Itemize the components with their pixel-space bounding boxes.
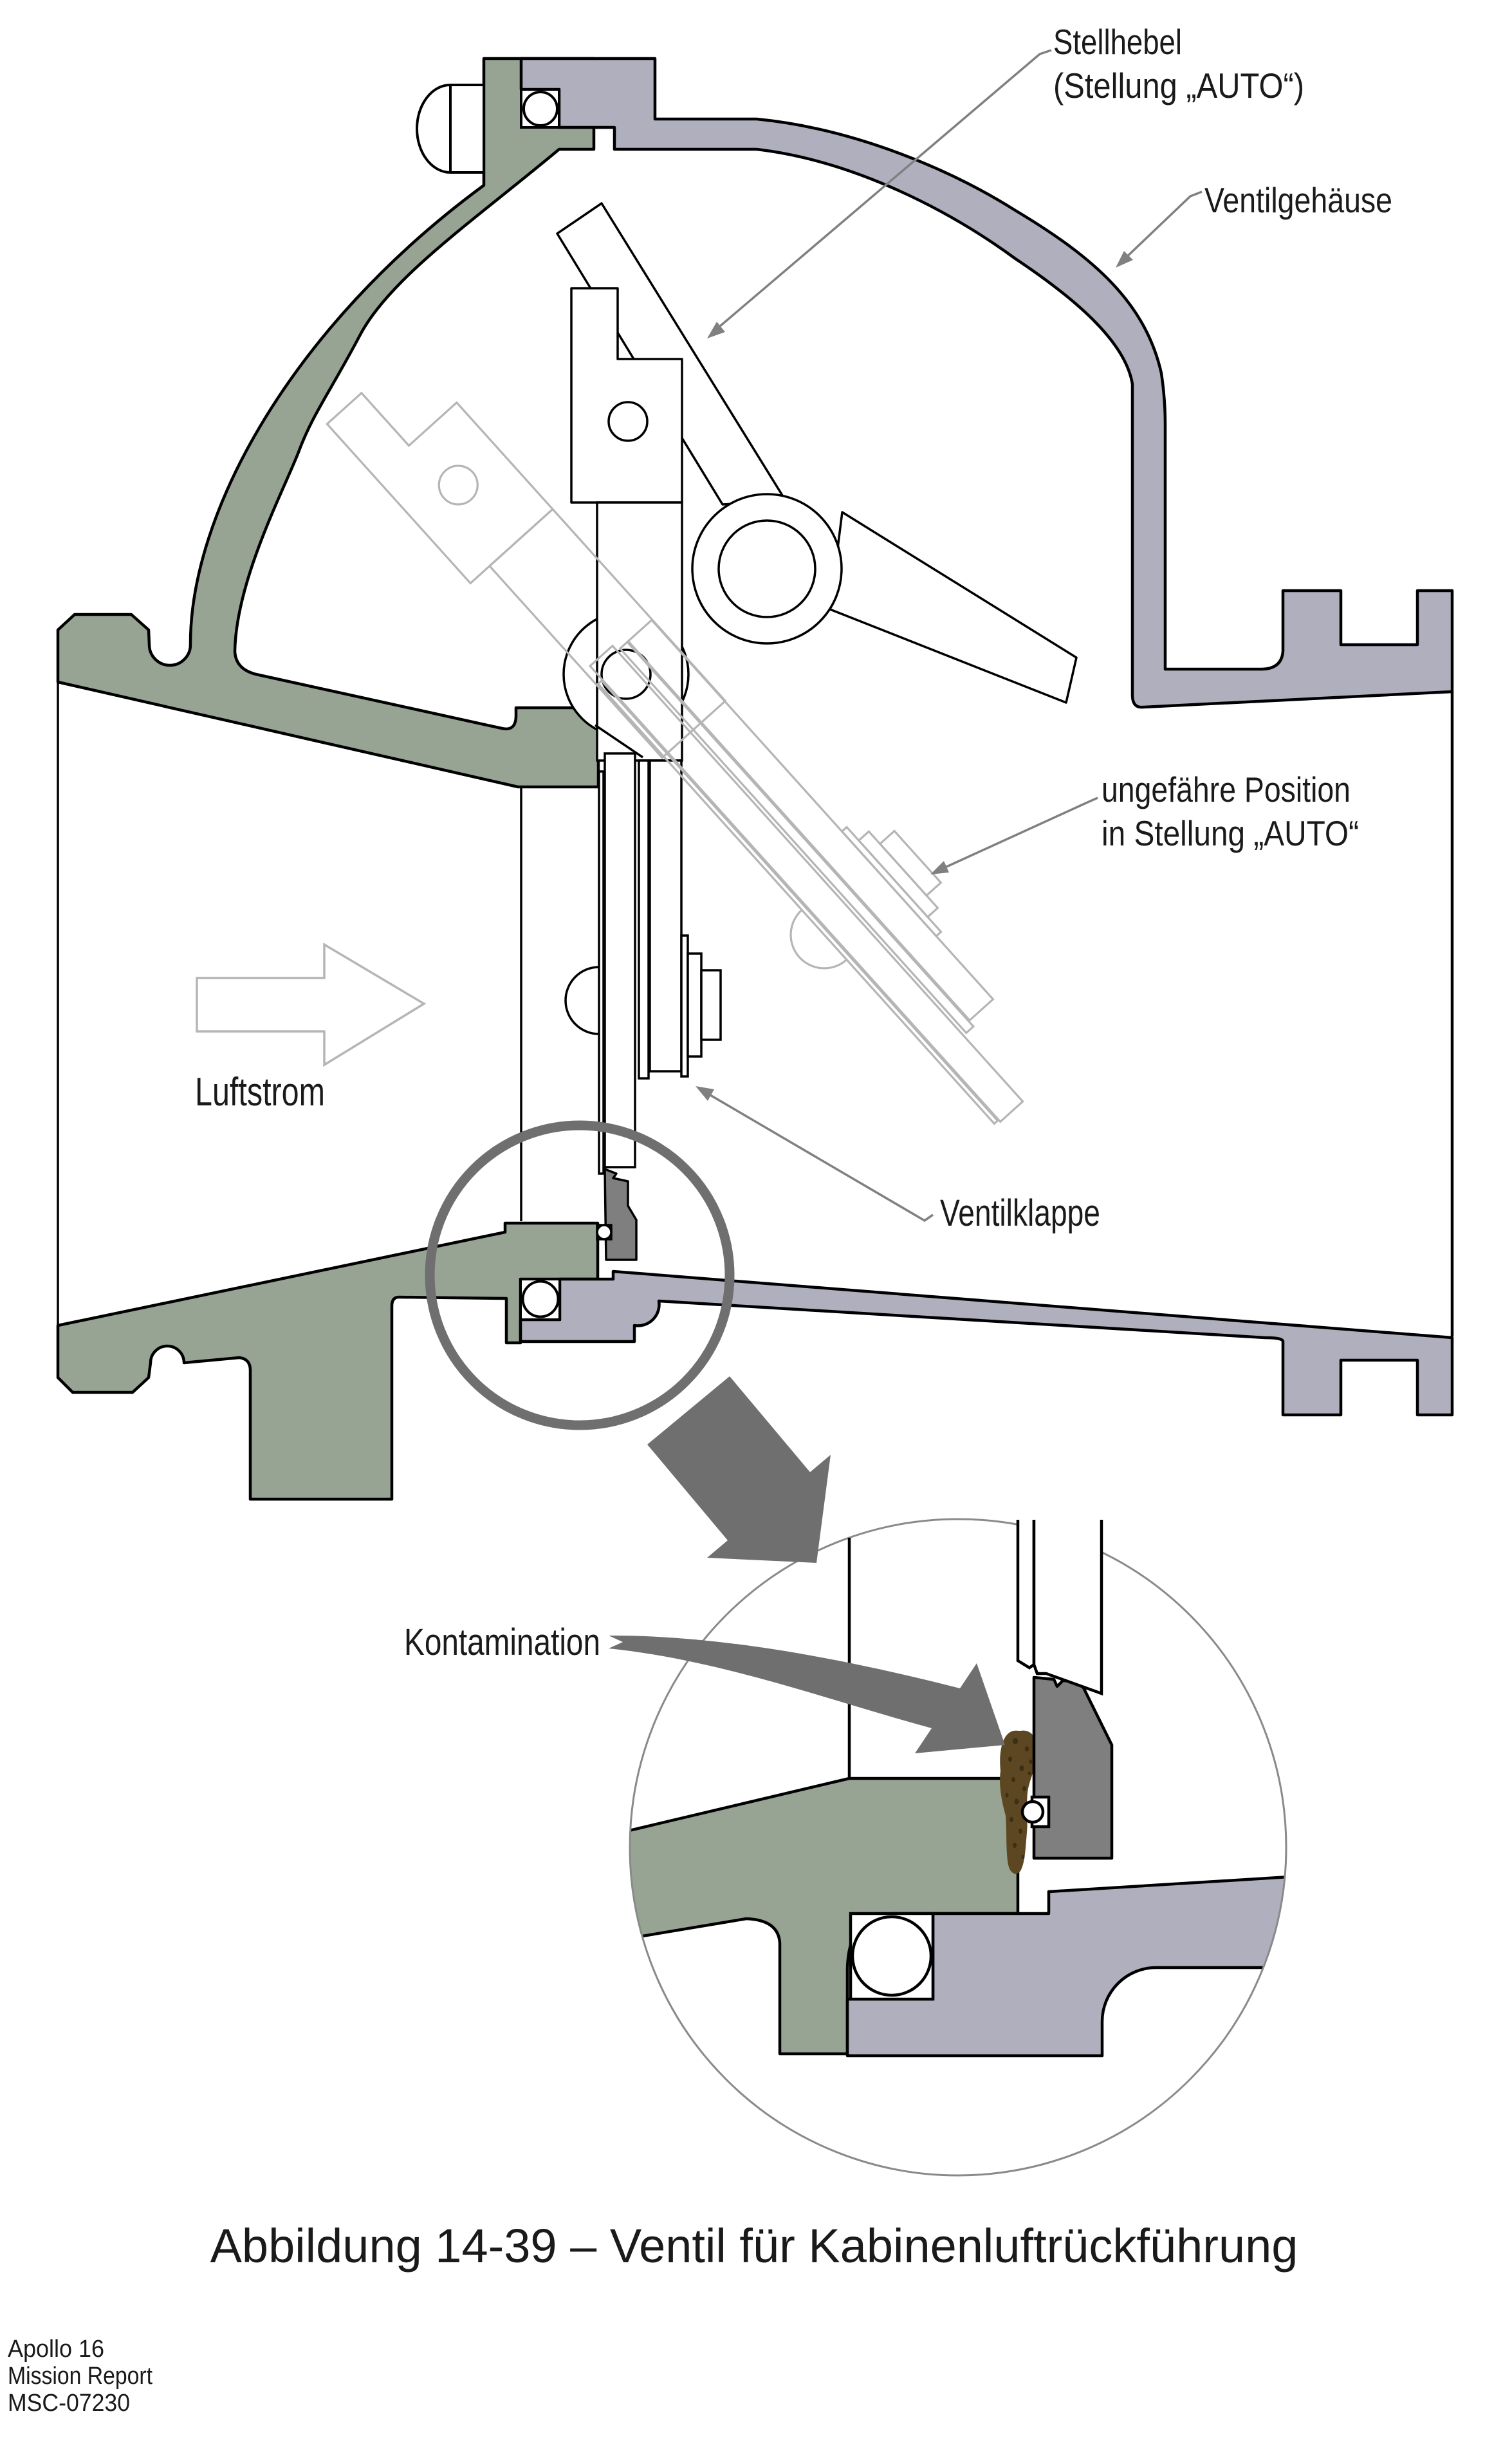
svg-text:Ventilklappe: Ventilklappe [940, 1192, 1100, 1234]
svg-text:MSC-07230: MSC-07230 [8, 2390, 130, 2417]
svg-text:Kontamination: Kontamination [404, 1621, 600, 1663]
svg-text:ungefähre Position: ungefähre Position [1102, 770, 1351, 809]
svg-text:Stellhebel: Stellhebel [1053, 22, 1182, 62]
svg-text:Luftstrom: Luftstrom [195, 1070, 325, 1114]
svg-text:Mission Report: Mission Report [8, 2363, 152, 2390]
svg-text:Apollo 16: Apollo 16 [8, 2336, 104, 2363]
svg-text:(Stellung „AUTO“): (Stellung „AUTO“) [1053, 66, 1304, 106]
svg-text:in Stellung „AUTO“: in Stellung „AUTO“ [1102, 813, 1359, 853]
svg-text:Abbildung 14-39 – Ventil für K: Abbildung 14-39 – Ventil für Kabinenluft… [210, 2219, 1298, 2273]
svg-text:Ventilgehäuse: Ventilgehäuse [1204, 180, 1392, 220]
